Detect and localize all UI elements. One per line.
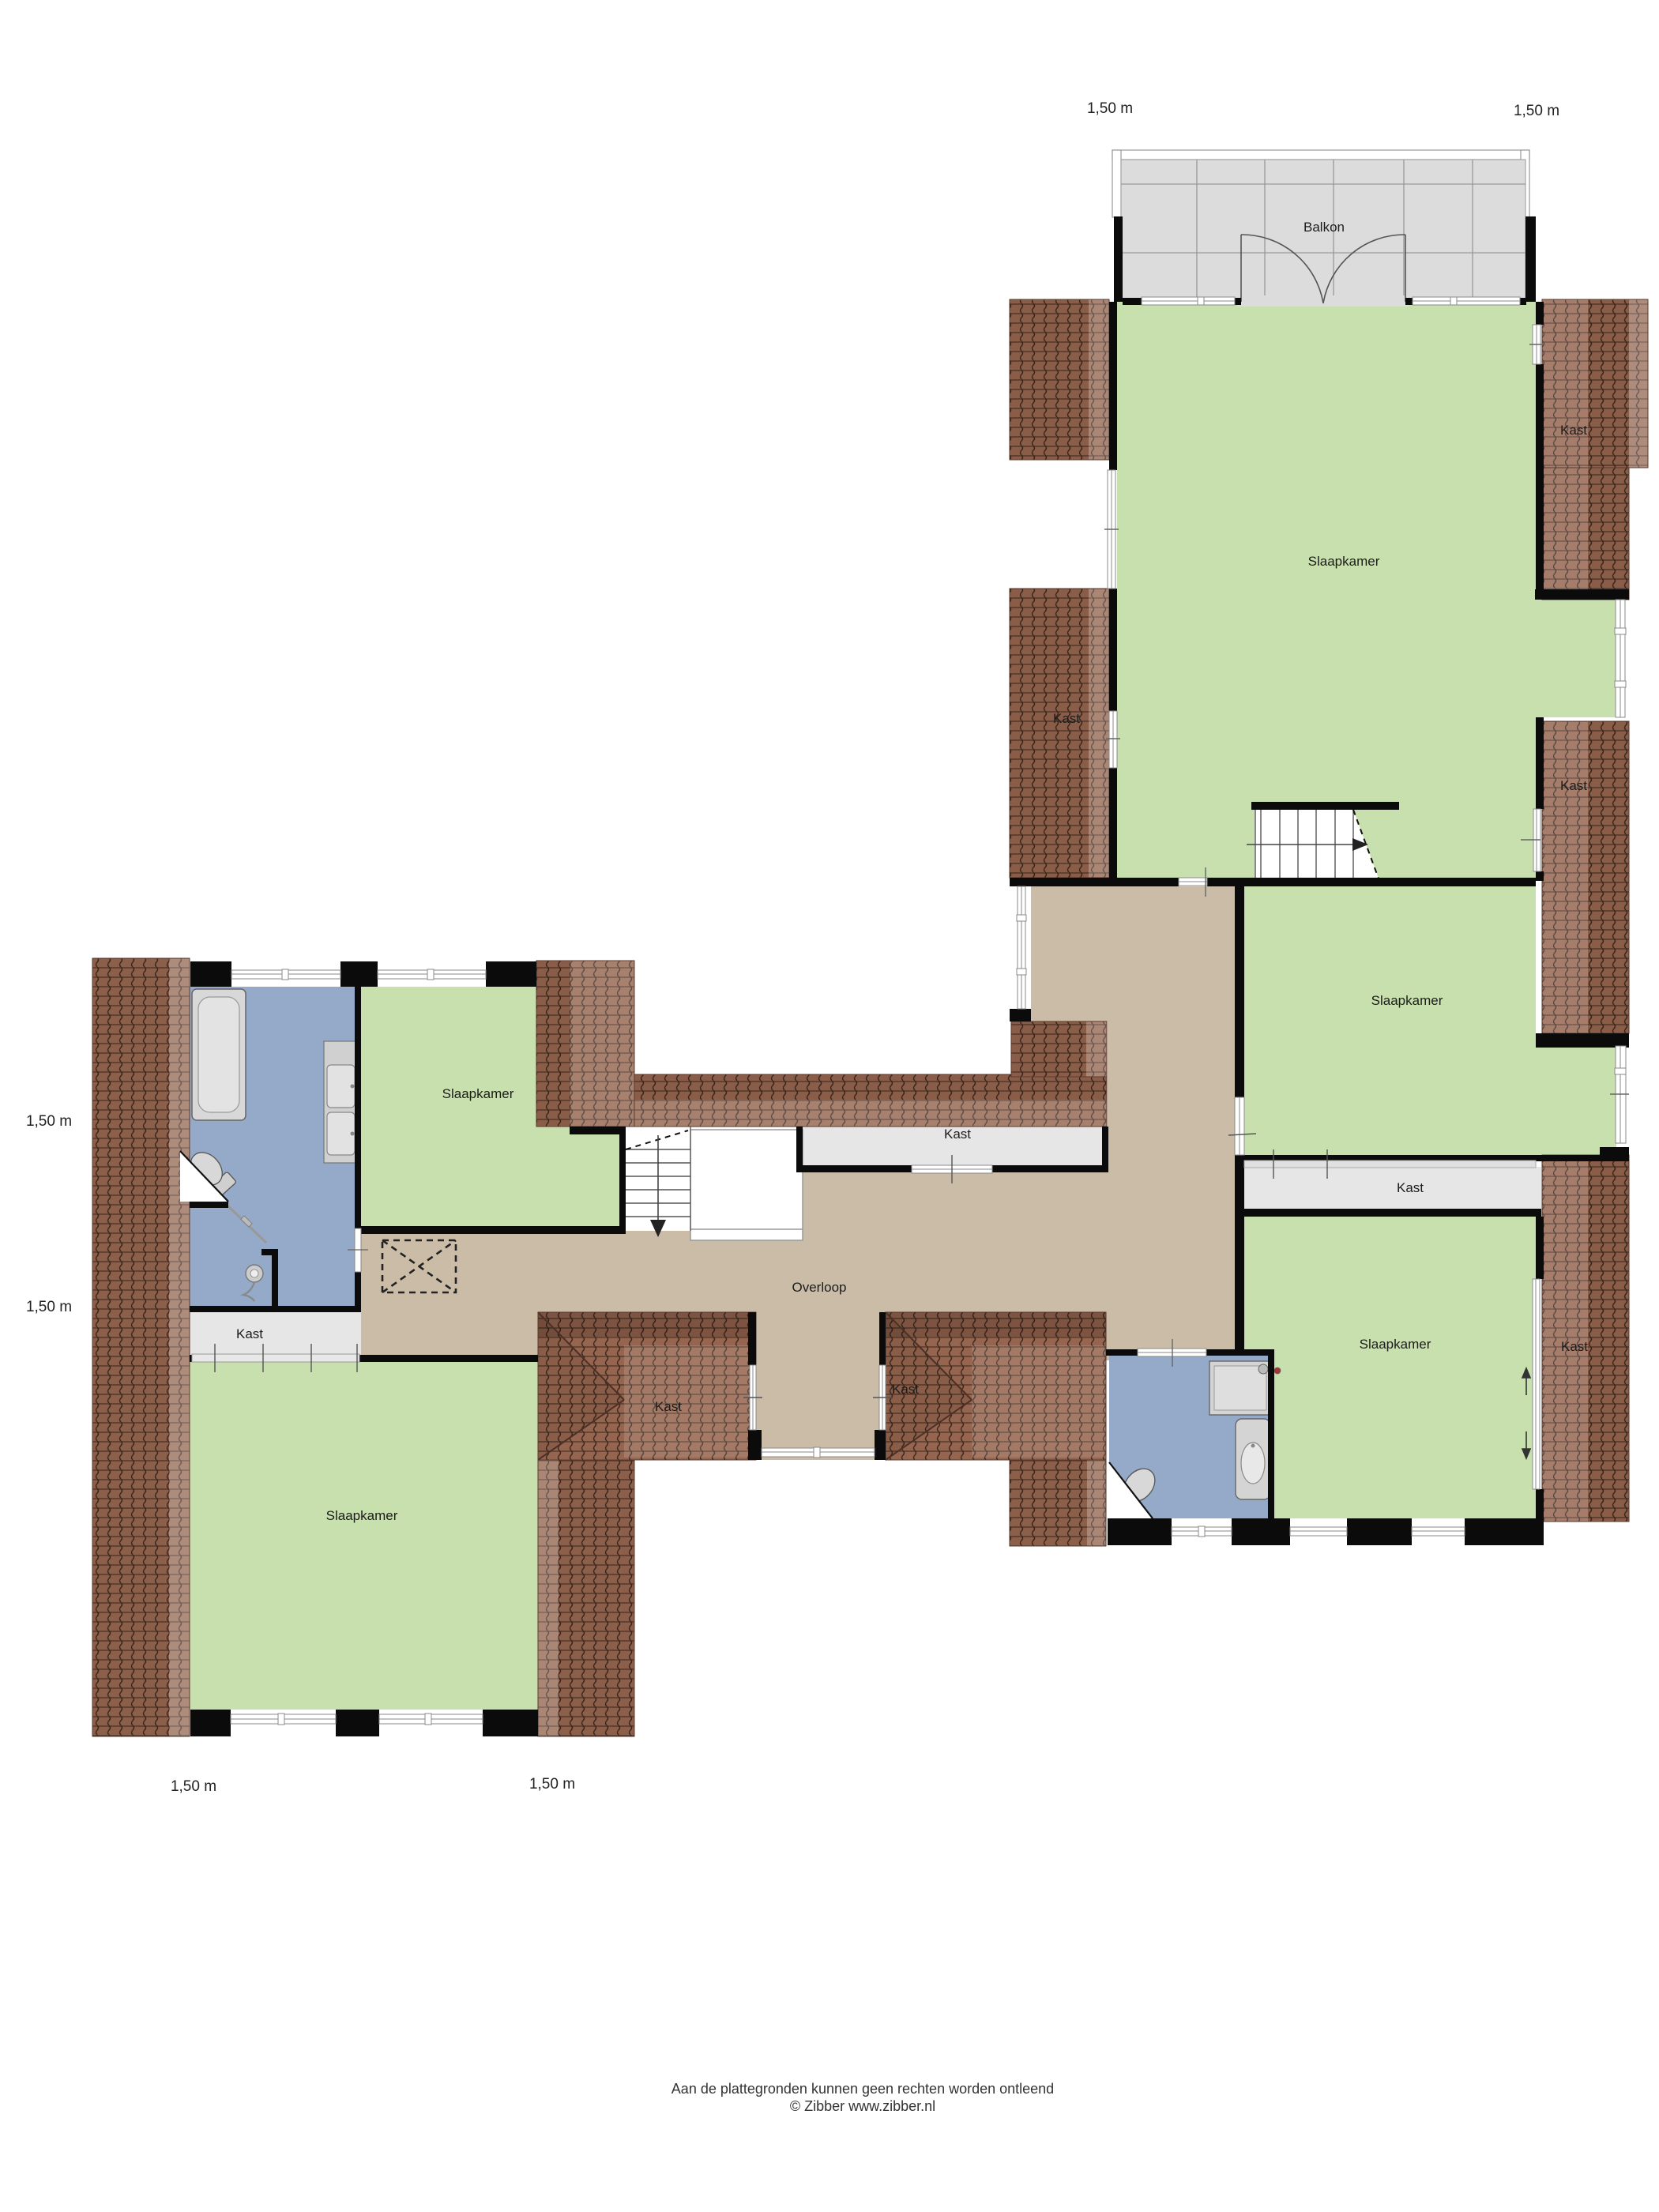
svg-text:Kast: Kast [1560,423,1587,438]
svg-text:© Zibber www.zibber.nl: © Zibber www.zibber.nl [790,2098,935,2114]
svg-text:Kast: Kast [1561,1339,1588,1354]
svg-text:Kast: Kast [1053,711,1080,726]
svg-text:1,50 m: 1,50 m [529,1776,575,1793]
svg-text:Kast: Kast [655,1399,682,1414]
svg-text:1,50 m: 1,50 m [26,1299,72,1315]
svg-text:Kast: Kast [892,1382,919,1397]
svg-text:Overloop: Overloop [792,1280,847,1295]
svg-text:Kast: Kast [236,1326,263,1341]
svg-text:Slaapkamer: Slaapkamer [1360,1337,1431,1352]
svg-text:Balkon: Balkon [1303,220,1345,235]
svg-text:Aan de plattegronden kunnen ge: Aan de plattegronden kunnen geen rechten… [671,2081,1054,2097]
svg-text:Slaapkamer: Slaapkamer [1308,554,1380,569]
svg-text:Kast: Kast [1397,1180,1424,1195]
svg-text:Kast: Kast [1560,778,1587,793]
svg-text:Slaapkamer: Slaapkamer [442,1086,514,1101]
svg-text:1,50 m: 1,50 m [171,1778,216,1795]
svg-text:1,50 m: 1,50 m [1514,103,1559,119]
svg-text:Kast: Kast [944,1127,971,1142]
svg-text:1,50 m: 1,50 m [1087,100,1133,117]
svg-text:Slaapkamer: Slaapkamer [326,1508,398,1523]
svg-text:Slaapkamer: Slaapkamer [1371,993,1443,1008]
svg-text:1,50 m: 1,50 m [26,1113,72,1130]
